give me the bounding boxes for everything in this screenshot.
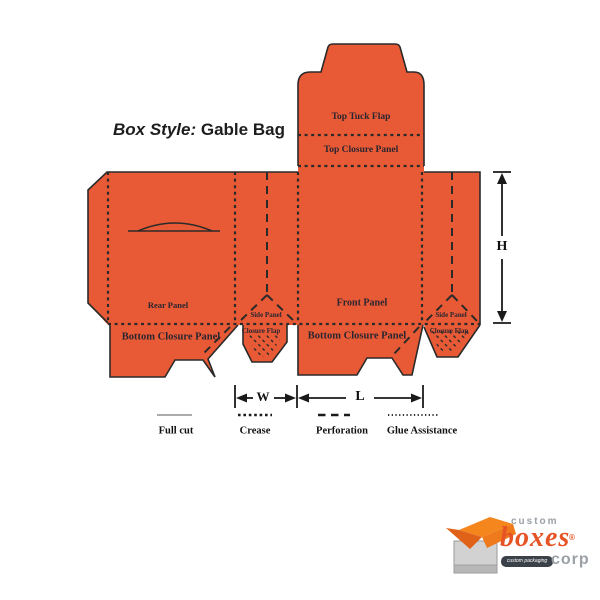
label-closure-flap-right: Closure Flap: [430, 327, 469, 335]
dimension-h: H: [497, 239, 508, 255]
label-side-panel-right: Side Panel: [435, 311, 466, 319]
gable-bag-dieline-page: Box Style: Gable Bag Top Tuck Flap Top C…: [0, 0, 600, 600]
dimension-l: L: [355, 389, 364, 405]
dieline-diagram: [0, 0, 600, 600]
logo-word-boxes: boxes: [500, 522, 570, 554]
label-side-panel-left: Side Panel: [250, 311, 281, 319]
label-top-closure-panel: Top Closure Panel: [324, 145, 398, 155]
logo-word-corp: corp: [551, 551, 590, 569]
dieline-shape: [88, 44, 480, 377]
legend-label-full-cut: Full cut: [159, 426, 194, 437]
logo-tagline: custom packaging solutions: [501, 556, 553, 567]
title-box-style: Gable Bag: [201, 120, 285, 139]
label-bottom-closure-panel-right: Bottom Closure Panel: [308, 331, 406, 342]
legend-label-perforation: Perforation: [316, 426, 368, 437]
label-closure-flap-left: Closure Flap: [242, 327, 281, 335]
legend-label-glue-assistance: Glue Assistance: [387, 426, 457, 437]
logo-registered-mark: ®: [569, 533, 575, 542]
dimension-w: W: [257, 389, 270, 405]
label-top-tuck-flap: Top Tuck Flap: [332, 112, 391, 122]
label-rear-panel: Rear Panel: [148, 300, 188, 310]
page-title: Box Style: Gable Bag: [113, 120, 285, 140]
legend-label-crease: Crease: [240, 426, 271, 437]
label-bottom-closure-panel-left: Bottom Closure Panel: [122, 332, 220, 343]
label-front-panel: Front Panel: [337, 298, 388, 309]
title-prefix: Box Style:: [113, 120, 196, 139]
